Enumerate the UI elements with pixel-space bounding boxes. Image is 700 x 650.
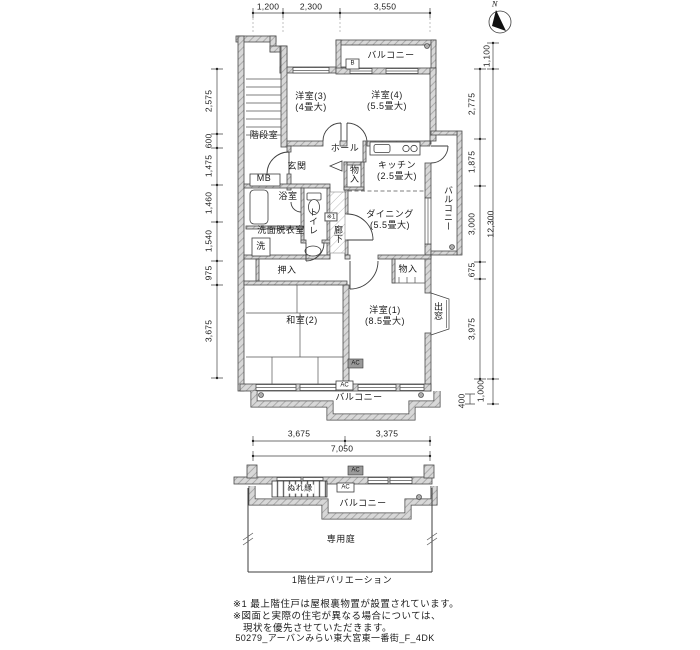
- dim-right-1: 2,775: [467, 93, 476, 115]
- room-label-western1: 洋室(1): [369, 306, 401, 316]
- room-label-bay-window: 出窓: [432, 302, 442, 320]
- room-label-washer: 洗: [256, 242, 266, 252]
- dim-left-3: 1,475: [204, 155, 213, 177]
- lower-label-garden: 専用庭: [327, 535, 356, 545]
- room-label-stairwell: 階段室: [250, 131, 279, 141]
- lower-ac-bottom: AC: [341, 484, 349, 491]
- room-label-entrance: 玄関: [287, 162, 306, 172]
- room-label-storage-w1: 物入: [398, 265, 417, 275]
- room-label-b-box: B: [350, 61, 354, 68]
- dim-bottom-1: 3,675: [288, 429, 310, 438]
- room-label-washroom: 洗面脱衣室: [257, 226, 305, 236]
- note-ref-1: ※1: [324, 212, 337, 221]
- room-label-western4: 洋室(4): [371, 91, 403, 101]
- dim-top-2: 2,300: [300, 2, 322, 11]
- stove-burner: [403, 145, 409, 151]
- room-label-balcony-top: バルコニー: [367, 51, 414, 61]
- drawing-footer-title: 50279_アーバンみらい東大宮東一番街_F_4DK: [235, 631, 434, 644]
- lower-plan-caption: 1階住戸バリエーション: [292, 576, 392, 586]
- room-size-western4: (5.5畳大): [367, 102, 407, 112]
- dim-left-2: 600: [204, 134, 213, 149]
- room-label-dining: ダイニング: [366, 210, 414, 220]
- dim-right-5: 3,975: [467, 318, 476, 340]
- lower-ac-top: AC: [351, 467, 359, 474]
- room-label-japanese2: 和室(2): [286, 316, 318, 326]
- room-size-dining: (5.5畳大): [370, 221, 410, 231]
- closet-hangers: [392, 277, 425, 283]
- room-size-western1: (8.5畳大): [365, 317, 405, 327]
- ac-label-upper: AC: [351, 360, 359, 367]
- room-label-kitchen: キッチン: [378, 161, 416, 171]
- room-label-bathroom: 浴室: [278, 192, 297, 202]
- room-label-toilet: トイレ: [307, 208, 317, 235]
- dim-top-1: 1,200: [257, 2, 279, 11]
- kitchen-sink: [374, 145, 390, 153]
- room-label-storage-hall: 物入: [348, 165, 358, 183]
- attic-ladder-hatch: [330, 192, 345, 253]
- dim-right-3: 3,000: [467, 213, 476, 235]
- toilet-tank: [307, 193, 321, 200]
- room-label-western3: 洋室(3): [295, 92, 327, 102]
- room-label-balcony-bottom: バルコニー: [334, 393, 383, 403]
- dim-right-outer-1: 1,100: [482, 45, 491, 67]
- dim-right-outer-2: 12,300: [486, 210, 495, 237]
- dim-right-outer-4: 400: [457, 394, 466, 409]
- wash-basin: [305, 246, 321, 256]
- dim-left-5: 1,540: [204, 230, 213, 252]
- dim-top-3: 3,550: [374, 2, 396, 11]
- dim-left-1: 2,575: [204, 90, 213, 112]
- stove-burner: [411, 145, 417, 151]
- north-arrow-icon: [489, 10, 511, 33]
- lower-label-nure-en: ぬれ縁: [286, 485, 314, 494]
- dim-right-outer-3: 1,000: [476, 380, 485, 402]
- dim-right-4: 675: [467, 263, 476, 278]
- dim-left-4: 1,460: [204, 192, 213, 214]
- room-size-kitchen: (2.5畳大): [377, 172, 417, 182]
- room-label-balcony-right: バルコニー: [442, 186, 452, 231]
- floor-plan-drawing: [0, 0, 700, 650]
- floor-plan-page: 1,200 2,300 3,550 2,575 600 1,475 1,460 …: [0, 0, 700, 650]
- room-label-meter-box: MB: [257, 174, 272, 184]
- lower-plan: [234, 465, 437, 572]
- room-label-oshiire: 押入: [277, 266, 296, 276]
- room-size-western3: (4畳大): [295, 103, 327, 113]
- room-label-hall: ホール: [331, 144, 360, 154]
- tatami-lines: [246, 285, 343, 384]
- dim-left-6: 975: [204, 266, 213, 281]
- north-label: N: [492, 0, 498, 9]
- step-arrow-icon: [330, 161, 342, 171]
- lower-label-balcony: バルコニー: [339, 499, 386, 509]
- room-label-corridor: 廊下: [332, 225, 342, 243]
- dim-bottom-total: 7,050: [331, 444, 353, 453]
- stairs: [246, 79, 281, 135]
- dim-right-2: 1,875: [467, 151, 476, 173]
- ac-label-wall: AC: [340, 382, 348, 389]
- dim-bottom-2: 3,375: [376, 429, 398, 438]
- dim-left-7: 3,675: [204, 320, 213, 342]
- bathtub: [250, 190, 268, 224]
